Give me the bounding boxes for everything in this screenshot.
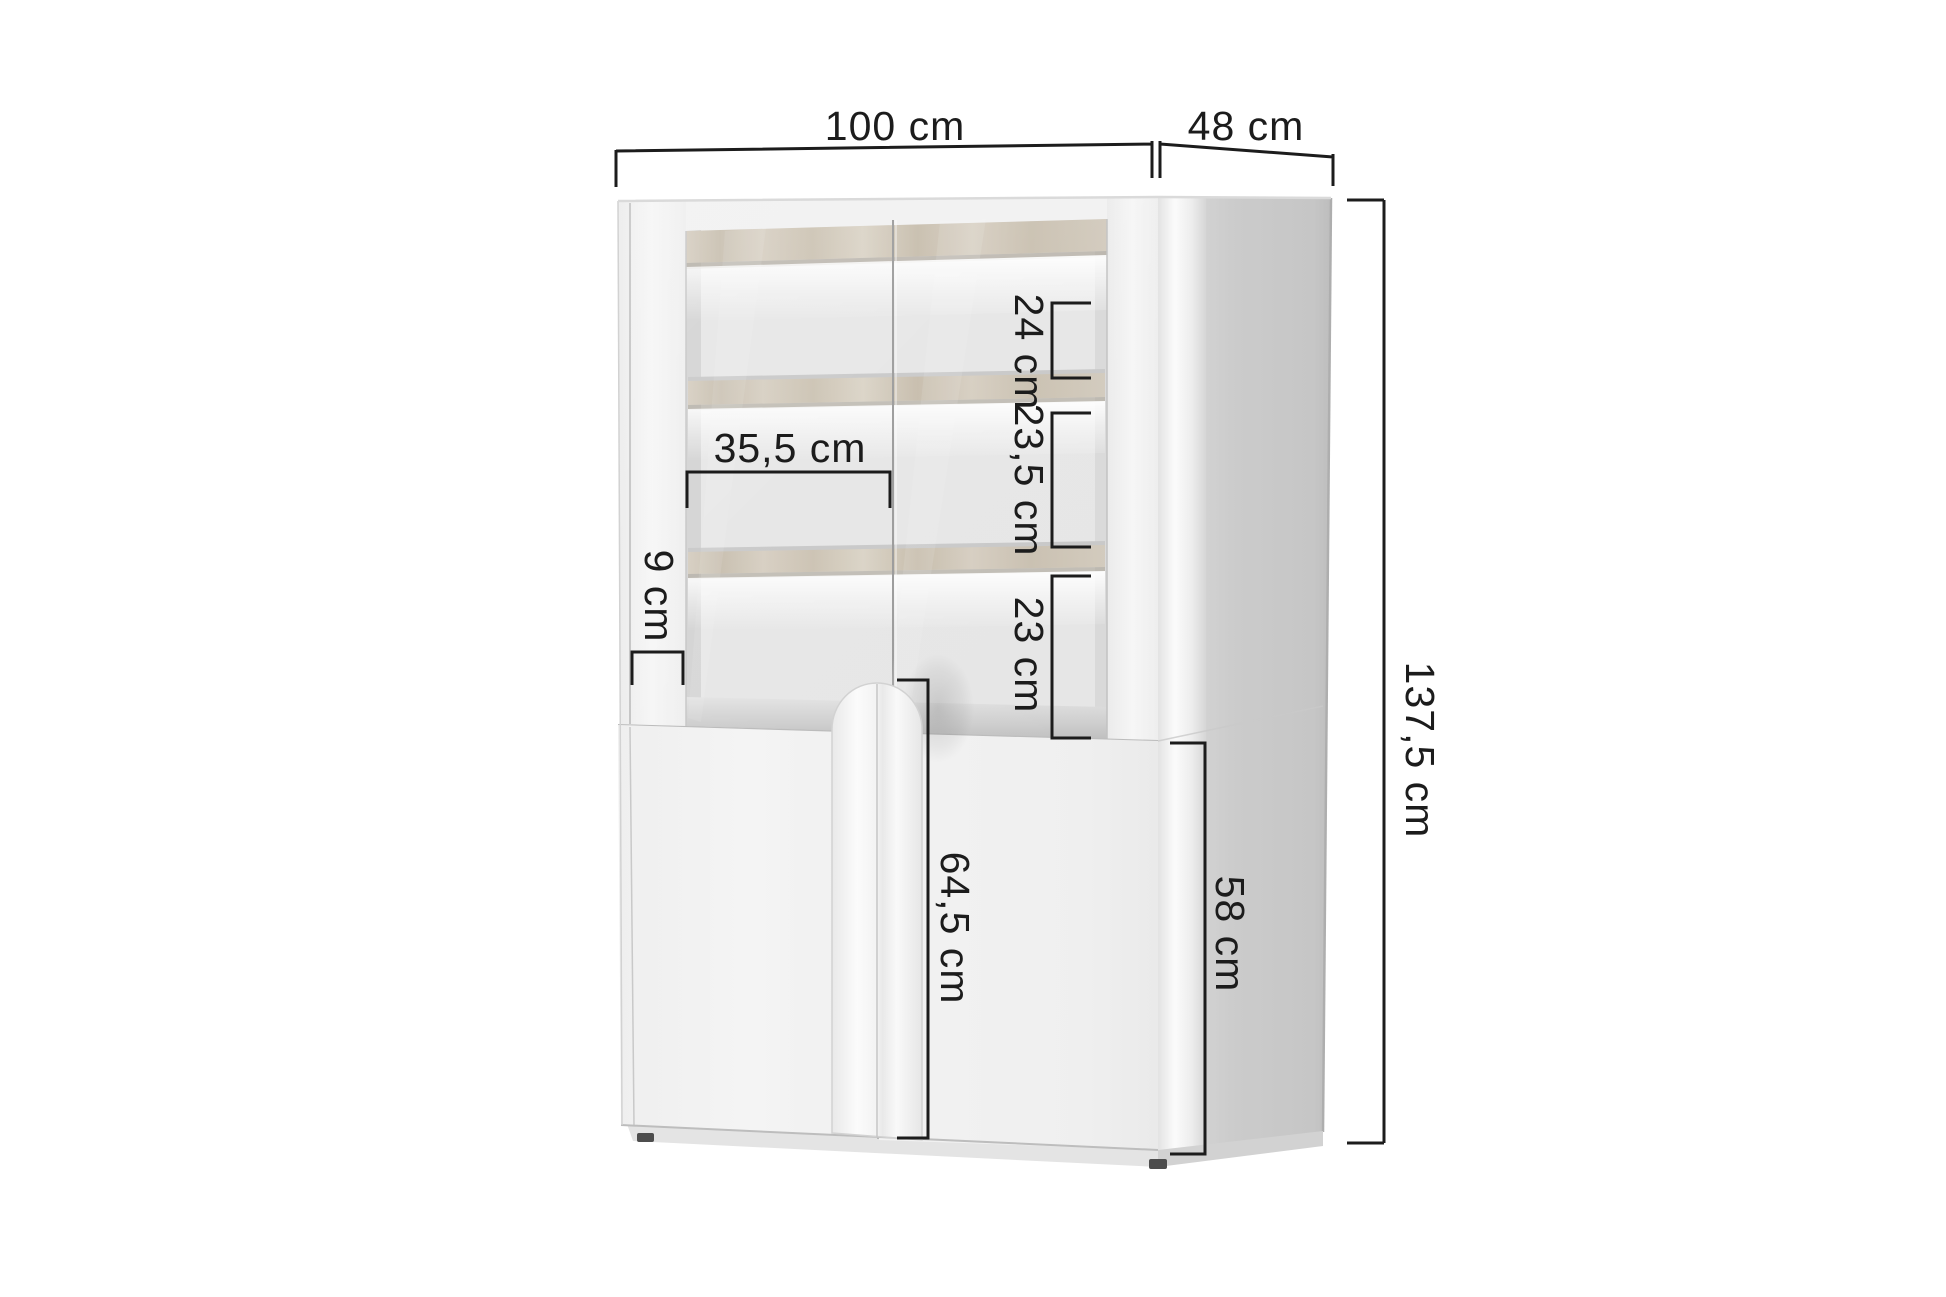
dim-frame-width-label: 9 cm bbox=[636, 550, 682, 643]
dim-door-height-label: 64,5 cm bbox=[932, 852, 978, 1005]
dim-gap-bottom-label: 23 cm bbox=[1006, 597, 1052, 714]
cabinet-corner-highlight bbox=[1158, 197, 1206, 1153]
dim-base-height-label: 58 cm bbox=[1207, 876, 1253, 993]
dim-width: 100 cm bbox=[616, 103, 1152, 187]
dim-depth-label: 48 cm bbox=[1188, 103, 1305, 149]
dim-gap-middle-label: 23,5 cm bbox=[1006, 404, 1052, 557]
cabinet bbox=[618, 197, 1331, 1169]
dim-height: 137,5 cm bbox=[1347, 200, 1443, 1143]
dim-gap-top-label: 24 cm bbox=[1006, 294, 1052, 411]
dim-inner-width-label: 35,5 cm bbox=[714, 425, 867, 471]
display-section bbox=[618, 197, 1158, 741]
dim-width-label: 100 cm bbox=[825, 103, 965, 149]
furniture-dimension-diagram: 100 cm 48 cm 137,5 cm 24 cm 23,5 cm 23 c… bbox=[0, 0, 1946, 1297]
glass-sheen bbox=[618, 197, 1158, 741]
dim-height-line bbox=[1347, 200, 1384, 1143]
cabinet-diagram-svg: 100 cm 48 cm 137,5 cm 24 cm 23,5 cm 23 c… bbox=[0, 0, 1946, 1297]
cabinet-foot-right bbox=[1149, 1159, 1167, 1169]
dim-depth: 48 cm bbox=[1160, 103, 1333, 186]
cabinet-foot-left bbox=[637, 1133, 654, 1142]
dim-height-label: 137,5 cm bbox=[1397, 662, 1443, 839]
